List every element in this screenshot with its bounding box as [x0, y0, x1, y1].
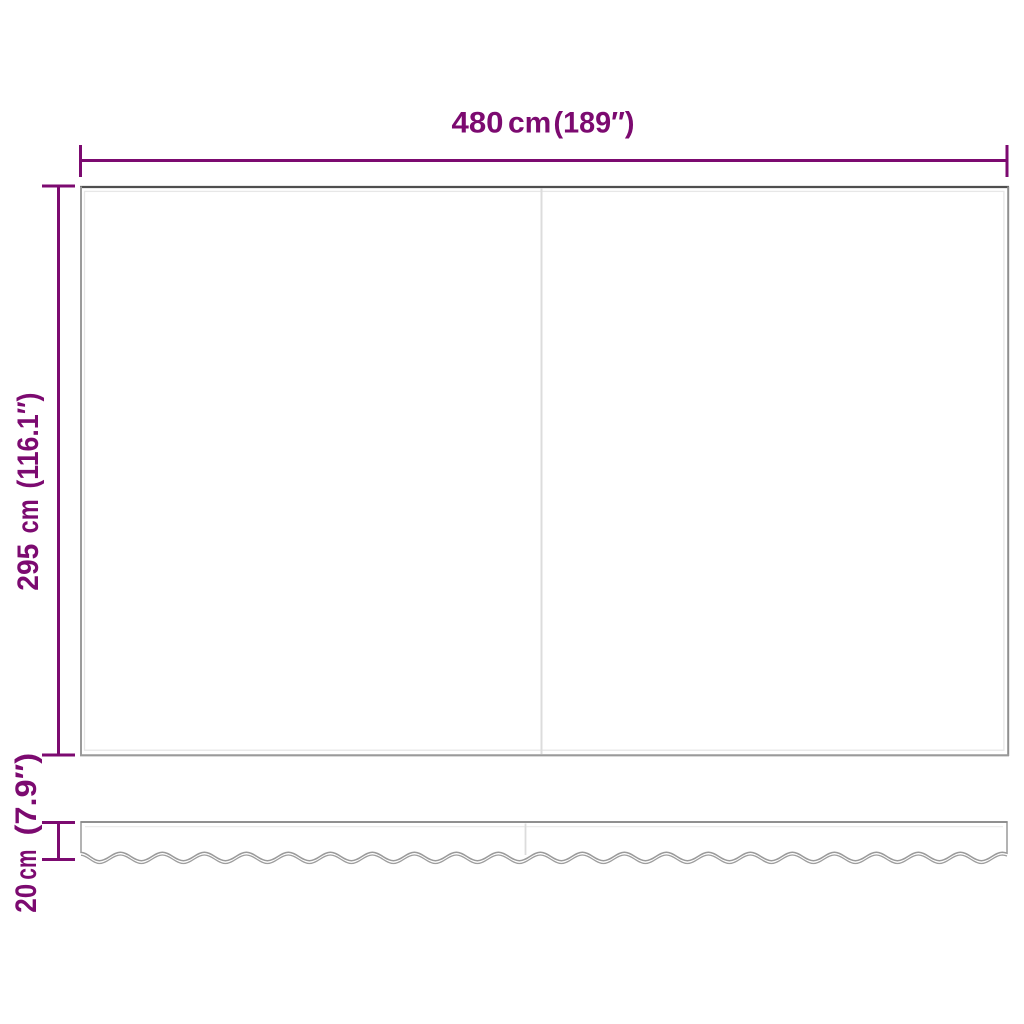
svg-text:480cm(189″): 480cm(189″)	[452, 107, 635, 140]
svg-text:20cm(7.9″): 20cm(7.9″)	[10, 753, 43, 913]
